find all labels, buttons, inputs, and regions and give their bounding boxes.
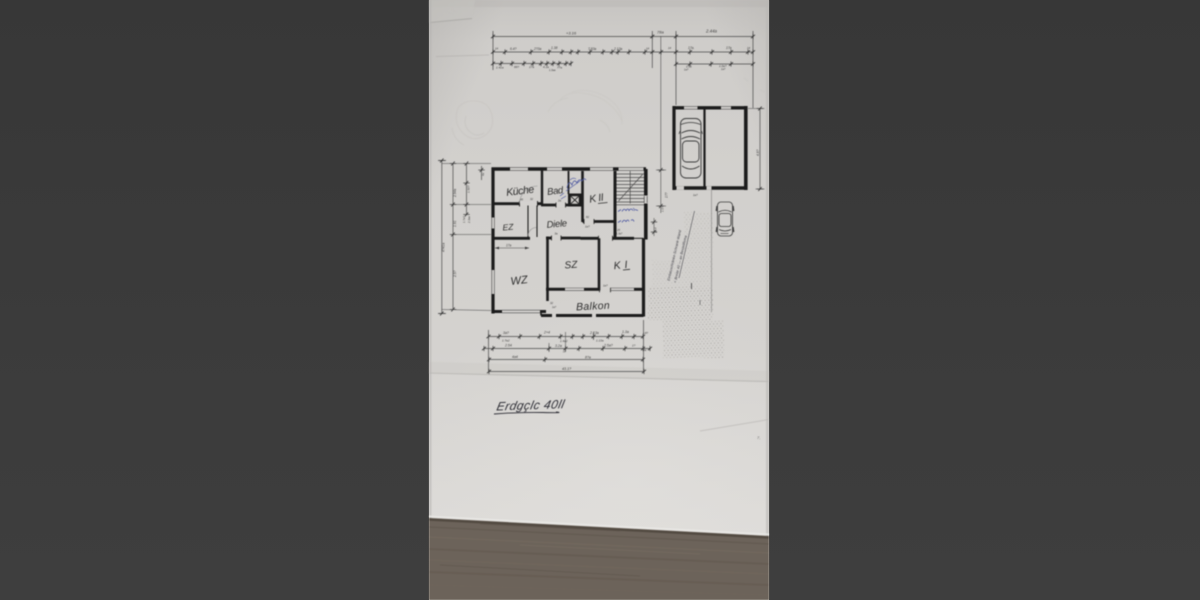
svg-text:1a?: 1a? (603, 284, 608, 288)
svg-text:K II: K II (588, 192, 604, 206)
svg-text:1.50?: 1.50? (467, 185, 471, 193)
svg-text:6.4?: 6.4? (510, 47, 517, 51)
svg-text:EZ: EZ (502, 222, 514, 233)
svg-text:7.83a: 7.83a (588, 47, 596, 51)
svg-text:14: 14 (668, 46, 672, 50)
svg-text:1.41a: 1.41a (496, 66, 504, 70)
svg-text:1.3aa: 1.3aa (549, 68, 556, 72)
svg-text:8?a: 8?a (585, 356, 591, 360)
svg-text:1a?: 1a? (684, 68, 689, 72)
svg-text:43.1?: 43.1? (562, 367, 572, 371)
svg-text:14: 14 (646, 47, 650, 51)
svg-text:45: 45 (520, 198, 524, 202)
svg-text:1.3a?: 1.3a? (616, 233, 623, 236)
svg-text:K I: K I (613, 259, 629, 272)
svg-text:14: 14 (747, 46, 751, 50)
svg-text:3a?: 3a? (503, 331, 509, 335)
svg-text:4a4: 4a4 (512, 355, 518, 359)
svg-text:2.44a: 2.44a (705, 29, 718, 34)
svg-text:2.54: 2.54 (504, 344, 512, 348)
svg-text:1.7a?: 1.7a? (462, 216, 466, 223)
svg-text:32: 32 (550, 301, 554, 305)
svg-text:WZ: WZ (510, 274, 530, 288)
svg-text:17a.: 17a. (688, 46, 695, 50)
svg-text:17a: 17a (726, 46, 732, 50)
svg-text:17?: 17? (665, 192, 669, 198)
svg-text:77a: 77a (557, 66, 562, 70)
svg-text:+9?: +9? (643, 331, 648, 335)
svg-text:25: 25 (616, 228, 621, 232)
svg-text:1.0?: 1.0? (661, 206, 665, 212)
svg-text:Balkon: Balkon (576, 300, 610, 314)
svg-text:2a: 2a (557, 199, 562, 203)
svg-text:1a?: 1a? (585, 225, 590, 229)
svg-text:2.94a: 2.94a (453, 189, 457, 198)
svg-text:4?41a: 4?41a (442, 243, 446, 252)
svg-text:Bad: Bad (547, 185, 565, 198)
svg-text:1.7a2: 1.7a2 (502, 339, 510, 343)
svg-text:Erdgçlc 40ll: Erdgçlc 40ll (495, 397, 566, 413)
svg-text:4.8?: 4.8? (756, 149, 760, 156)
svg-text:1.4a2: 1.4a2 (560, 339, 568, 343)
svg-text:78a: 78a (657, 30, 664, 35)
svg-text:4a: 4a (643, 348, 647, 352)
svg-text:3a: 3a (555, 232, 559, 236)
svg-text:99?: 99? (514, 65, 519, 69)
svg-text:+3.16: +3.16 (566, 31, 577, 36)
svg-text:82: 82 (586, 215, 590, 219)
svg-text:32: 32 (530, 197, 534, 201)
svg-text:14: 14 (495, 47, 499, 51)
svg-text:1.38: 1.38 (551, 46, 558, 50)
svg-text:2.13a: 2.13a (589, 331, 599, 335)
svg-text:2.13a: 2.13a (613, 47, 622, 51)
svg-text:1?: 1? (632, 344, 636, 348)
svg-text:17a: 17a (506, 244, 512, 248)
svg-text:2?3a: 2?3a (533, 47, 542, 51)
svg-text:1.91: 1.91 (453, 220, 457, 227)
svg-text:2.5a?: 2.5a? (603, 344, 613, 348)
svg-text:4a: 4a (481, 173, 485, 176)
svg-text:7,: 7, (757, 435, 760, 440)
svg-text:2.3aa: 2.3aa (467, 216, 471, 224)
svg-text:3.2a: 3.2a (555, 344, 562, 348)
svg-text:1a?: 1a? (721, 67, 726, 71)
svg-text:SZ: SZ (564, 260, 578, 272)
svg-text:1a?: 1a? (693, 193, 698, 197)
svg-text:2+4: 2+4 (543, 331, 550, 335)
svg-text:17a: 17a (529, 65, 534, 69)
svg-text:Diele: Diele (546, 218, 567, 231)
svg-text:1.13a: 1.13a (596, 339, 604, 343)
svg-text:16.4: 16.4 (654, 227, 658, 233)
svg-text:1.3a: 1.3a (622, 330, 629, 334)
svg-text:2.5?: 2.5? (453, 270, 457, 278)
svg-text:1a?: 1a? (552, 306, 557, 309)
